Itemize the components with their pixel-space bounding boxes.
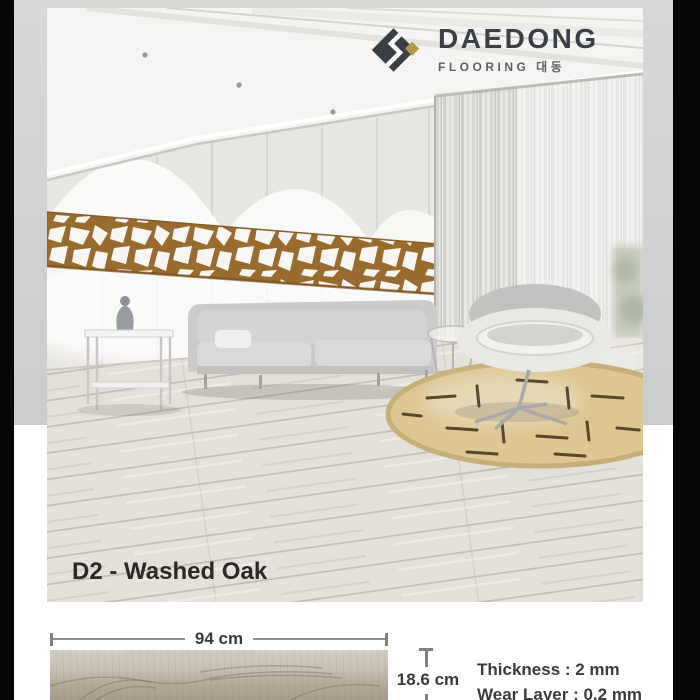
width-dimension-label: 94 cm — [195, 629, 243, 649]
plank-grain — [50, 650, 388, 700]
room-scene — [47, 8, 643, 602]
product-name-label: D2 - Washed Oak — [72, 558, 267, 586]
right-black-bar — [673, 0, 700, 700]
brand-logo-text: DAEDONG FLOORING 대동 — [438, 25, 599, 75]
brand-name: DAEDONG — [438, 25, 599, 54]
dimension-line — [53, 638, 185, 641]
left-black-bar — [0, 0, 14, 700]
room-photo: DAEDONG FLOORING 대동 D2 - Washed Oak — [47, 8, 643, 602]
seat-cushion — [315, 340, 431, 366]
spec-thickness: Thickness : 2 mm — [477, 657, 642, 682]
seat-cushion — [197, 342, 311, 368]
throw-pillow — [215, 330, 251, 348]
ad-canvas: DAEDONG FLOORING 대동 D2 - Washed Oak 94 c… — [0, 0, 700, 700]
dimension-line — [253, 638, 385, 641]
width-dimension: 94 cm — [50, 629, 388, 649]
brand-logo: DAEDONG FLOORING 대동 — [370, 21, 599, 79]
dimension-tick — [385, 633, 388, 646]
product-specs: Thickness : 2 mm Wear Layer : 0.2 mm — [477, 657, 642, 700]
daedong-diamond-logo-icon — [370, 21, 428, 79]
height-dimension-line — [425, 651, 428, 667]
spec-wear-layer: Wear Layer : 0.2 mm — [477, 682, 642, 700]
brand-subtitle: FLOORING 대동 — [438, 58, 599, 75]
height-dimension-label: 18.6 cm — [392, 670, 464, 690]
plank-sample-image — [50, 650, 388, 700]
height-dimension-line-lower — [425, 694, 428, 700]
